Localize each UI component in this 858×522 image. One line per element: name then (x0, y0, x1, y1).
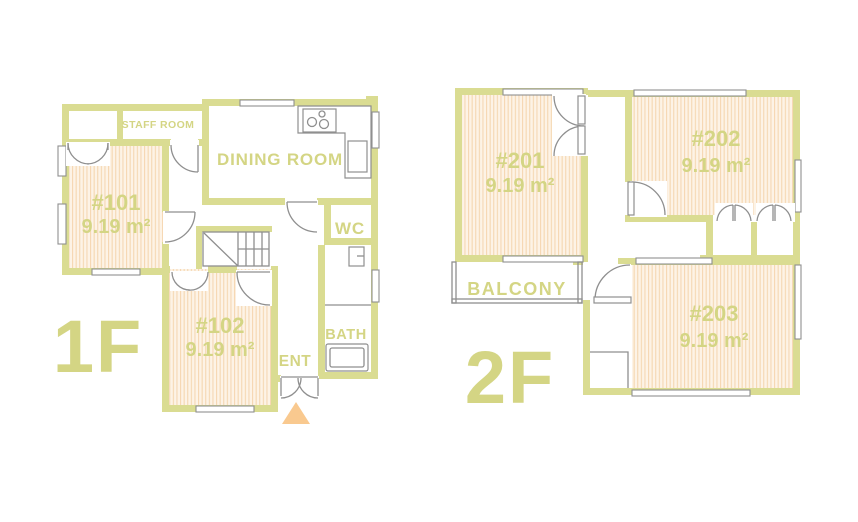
window-icon (634, 90, 746, 96)
wall (196, 226, 272, 232)
entrance-label: ENT (279, 353, 312, 370)
railing (452, 262, 456, 303)
room-101-area: 9.19 m² (82, 216, 151, 238)
wall (583, 300, 590, 395)
wall (706, 215, 713, 262)
wall (318, 372, 378, 379)
stove-icon (303, 109, 336, 132)
wall (317, 198, 378, 205)
room-102-number: #102 (196, 313, 245, 338)
floor-1-title: 1F (53, 305, 143, 388)
window-icon (240, 100, 294, 106)
door-backing (170, 271, 208, 291)
door-swing-icon (236, 270, 272, 306)
wall (162, 266, 169, 412)
window-icon (795, 160, 801, 212)
staff-room-label: STAFF ROOM (122, 119, 195, 131)
window-icon (503, 256, 583, 262)
door-swing-icon (593, 264, 631, 303)
railing (578, 262, 582, 303)
wall (202, 99, 209, 205)
room-102-area: 9.19 m² (186, 339, 255, 361)
room-202-area: 9.19 m² (682, 155, 751, 177)
door-swing-icon (170, 140, 199, 173)
closet-door-icon (715, 203, 753, 222)
window-icon (92, 269, 140, 275)
bathtub-icon (326, 344, 368, 371)
window-icon (372, 112, 379, 148)
door-swing-icon (628, 181, 667, 217)
room-203-floor (632, 265, 793, 388)
door-leaf (578, 96, 585, 124)
window-icon (58, 204, 66, 244)
stairs-icon (203, 232, 269, 266)
dining-room-label: DINING ROOM (217, 150, 343, 169)
floor-plan-2f: 2F BALCONY #201 9.19 m² #202 9.19 m² #20… (452, 88, 801, 419)
door-swing-icon (163, 211, 196, 244)
railing (452, 299, 582, 303)
wall (625, 90, 632, 182)
wall (271, 266, 278, 412)
balcony-label: BALCONY (467, 279, 567, 299)
door-leaf (578, 126, 585, 154)
wall (455, 88, 462, 262)
bath-label: BATH (325, 327, 367, 343)
window-icon (196, 406, 254, 412)
door-leaf (594, 297, 631, 303)
wall (162, 139, 169, 212)
room-203-number: #203 (690, 301, 739, 326)
door-swing-icon (285, 200, 318, 233)
alcove-203 (590, 352, 628, 388)
window-icon (372, 270, 379, 302)
entrance-arrow-icon (282, 402, 310, 424)
floor-plan-1f: 1F STAFF ROOM DINING ROOM WC BATH ENT #1… (53, 96, 379, 424)
room-201-number: #201 (496, 148, 545, 173)
door-backing (715, 203, 753, 222)
wall (793, 90, 800, 395)
room-202-number: #202 (692, 126, 741, 151)
wall (324, 238, 378, 245)
wall (62, 104, 209, 111)
wall (208, 266, 237, 273)
closet-door-icon (552, 94, 586, 156)
wall (581, 156, 588, 262)
room-201-area: 9.19 m² (486, 175, 555, 197)
window-icon (795, 265, 801, 339)
washbasin-icon (349, 247, 364, 266)
door-backing (280, 376, 319, 400)
room-101-number: #101 (92, 190, 141, 215)
door-leaf (628, 182, 634, 215)
closet-door-icon (170, 271, 208, 291)
wall (196, 226, 202, 269)
wc-label: WC (335, 219, 365, 238)
stairs-steps (204, 232, 269, 266)
alcove-backing (590, 352, 628, 388)
floor-plan-canvas: 1F STAFF ROOM DINING ROOM WC BATH ENT #1… (0, 0, 858, 522)
sink-icon (348, 141, 367, 172)
wall (62, 104, 69, 275)
floor-2-title: 2F (465, 336, 555, 419)
wall (205, 198, 285, 205)
door-backing (66, 142, 110, 166)
entrance-door-icon (280, 376, 319, 400)
closet-door-icon (756, 203, 795, 222)
window-icon (58, 146, 66, 176)
closet-door-icon (66, 142, 110, 166)
room-203-area: 9.19 m² (680, 330, 749, 352)
window-icon (632, 390, 750, 396)
sanitary-1f (325, 247, 371, 371)
wall (271, 375, 281, 382)
window-icon (636, 258, 712, 264)
wall (318, 245, 325, 379)
